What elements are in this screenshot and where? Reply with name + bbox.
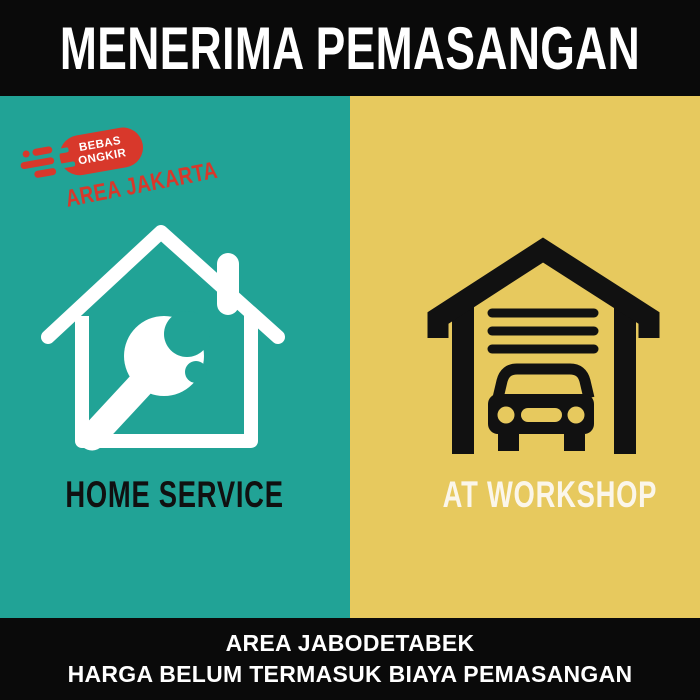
speed-line-icon	[34, 168, 57, 179]
panels: BEBAS ONGKIR AREA JAKARTA	[0, 96, 700, 618]
workshop-label-wrap: AT WORKSHOP	[375, 474, 700, 516]
badge-notch	[56, 147, 69, 154]
speed-line-icon	[22, 150, 30, 158]
house-wrench-icon	[36, 220, 286, 470]
badge-notch	[59, 161, 76, 169]
footer-line1: AREA JABODETABEK	[226, 628, 475, 659]
bebas-ongkir-badge: BEBAS ONGKIR	[56, 124, 146, 178]
footer-line2: HARGA BELUM TERMASUK BIAYA PEMASANGAN	[68, 659, 633, 690]
speed-line-icon	[32, 146, 53, 156]
poster-title: MENERIMA PEMASANGAN	[60, 14, 640, 83]
promo-poster: MENERIMA PEMASANGAN BEBAS ONGKIR AREA JA…	[0, 0, 700, 700]
home-service-label: HOME SERVICE	[66, 474, 284, 516]
garage-car-icon	[424, 234, 664, 474]
bottom-banner: AREA JABODETABEK HARGA BELUM TERMASUK BI…	[0, 618, 700, 700]
home-service-panel: BEBAS ONGKIR AREA JAKARTA	[0, 96, 350, 618]
workshop-label: AT WORKSHOP	[443, 474, 657, 516]
home-service-label-wrap: HOME SERVICE	[0, 474, 350, 516]
workshop-panel: AT WORKSHOP	[350, 96, 700, 618]
top-banner: MENERIMA PEMASANGAN	[0, 0, 700, 96]
